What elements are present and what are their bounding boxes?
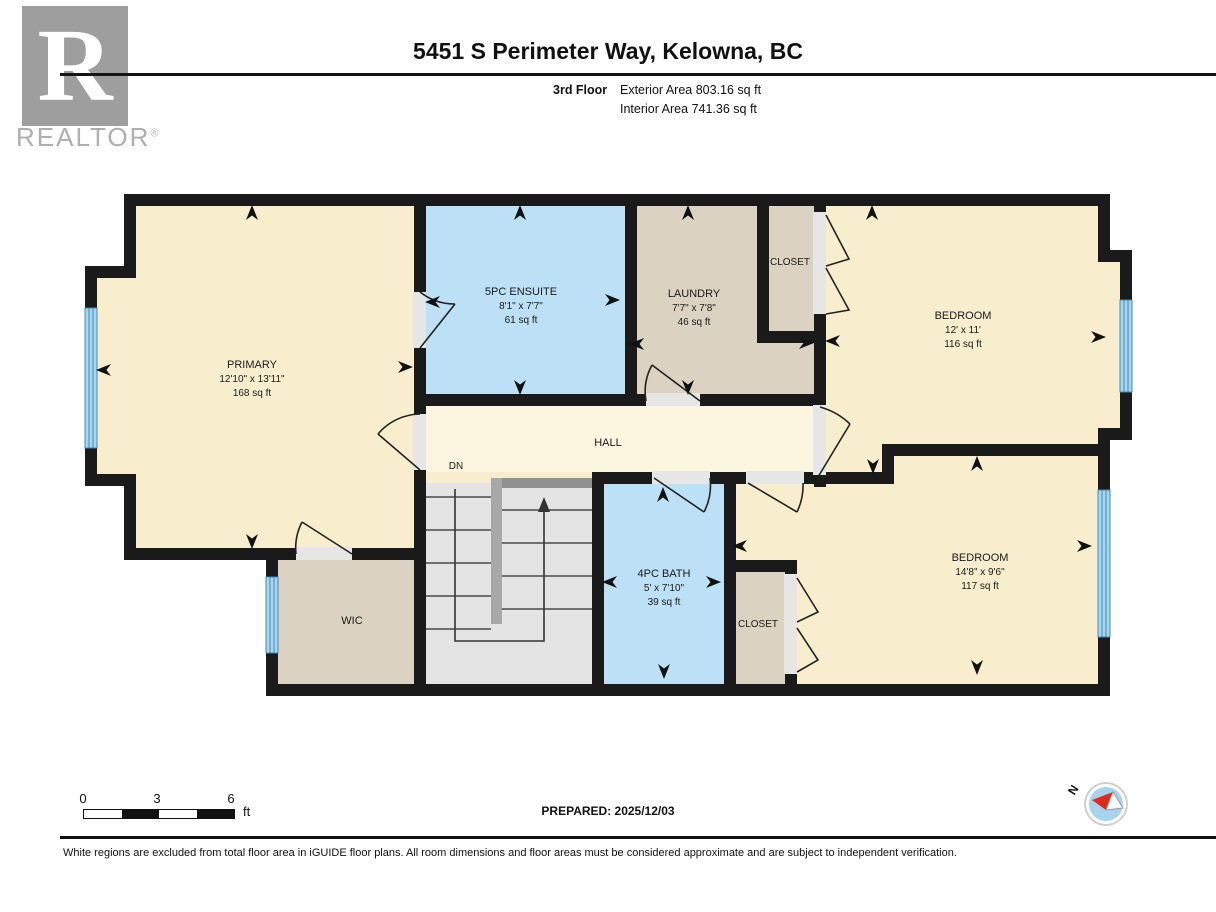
stairs-landing-strip <box>502 478 592 488</box>
floorplan: PRIMARY 12'10" x 13'11" 168 sq ft 5PC EN… <box>0 0 1216 912</box>
label-laundry-name: LAUNDRY <box>668 288 721 300</box>
label-primary-dims: 12'10" x 13'11" <box>219 374 285 385</box>
room-stairs-fill <box>426 483 592 684</box>
stairs-divider <box>491 478 502 624</box>
label-bedroom-ne-area: 116 sq ft <box>944 339 982 350</box>
label-laundry-dims: 7'7" x 7'8" <box>672 303 716 314</box>
label-bedroom-se-area: 117 sq ft <box>961 581 999 592</box>
label-laundry-area: 46 sq ft <box>678 317 711 328</box>
window-bedroom-se <box>1098 490 1110 637</box>
compass-icon <box>1082 780 1130 828</box>
label-closet-top: CLOSET <box>770 257 810 268</box>
label-primary-area: 168 sq ft <box>233 388 272 399</box>
window-primary <box>85 308 97 448</box>
footer-rule <box>60 836 1216 839</box>
label-ensuite-dims: 8'1" x 7'7" <box>499 301 543 312</box>
label-wic: WIC <box>341 615 362 627</box>
label-stairs-dn: DN <box>449 461 463 472</box>
floorplan-page: R REALTOR® 5451 S Perimeter Way, Kelowna… <box>0 0 1216 912</box>
label-bedroom-ne-name: BEDROOM <box>935 310 992 322</box>
window-wic <box>266 577 278 653</box>
label-hall: HALL <box>594 437 622 449</box>
label-closet-bottom: CLOSET <box>738 619 778 630</box>
prepared-date: PREPARED: 2025/12/03 <box>0 804 1216 818</box>
footer-disclaimer: White regions are excluded from total fl… <box>63 847 957 859</box>
label-bath-name: 4PC BATH <box>638 568 691 580</box>
label-bath-area: 39 sq ft <box>648 597 681 608</box>
label-primary-name: PRIMARY <box>227 359 278 371</box>
room-laundry-fill <box>631 206 814 396</box>
label-bedroom-ne-dims: 12' x 11' <box>945 325 981 336</box>
window-bedroom-ne <box>1120 300 1132 392</box>
label-bedroom-se-dims: 14'8" x 9'6" <box>955 567 1005 578</box>
label-ensuite-area: 61 sq ft <box>505 315 538 326</box>
label-ensuite-name: 5PC ENSUITE <box>485 286 557 298</box>
label-bath-dims: 5' x 7'10" <box>644 583 685 594</box>
label-bedroom-se-name: BEDROOM <box>952 552 1009 564</box>
